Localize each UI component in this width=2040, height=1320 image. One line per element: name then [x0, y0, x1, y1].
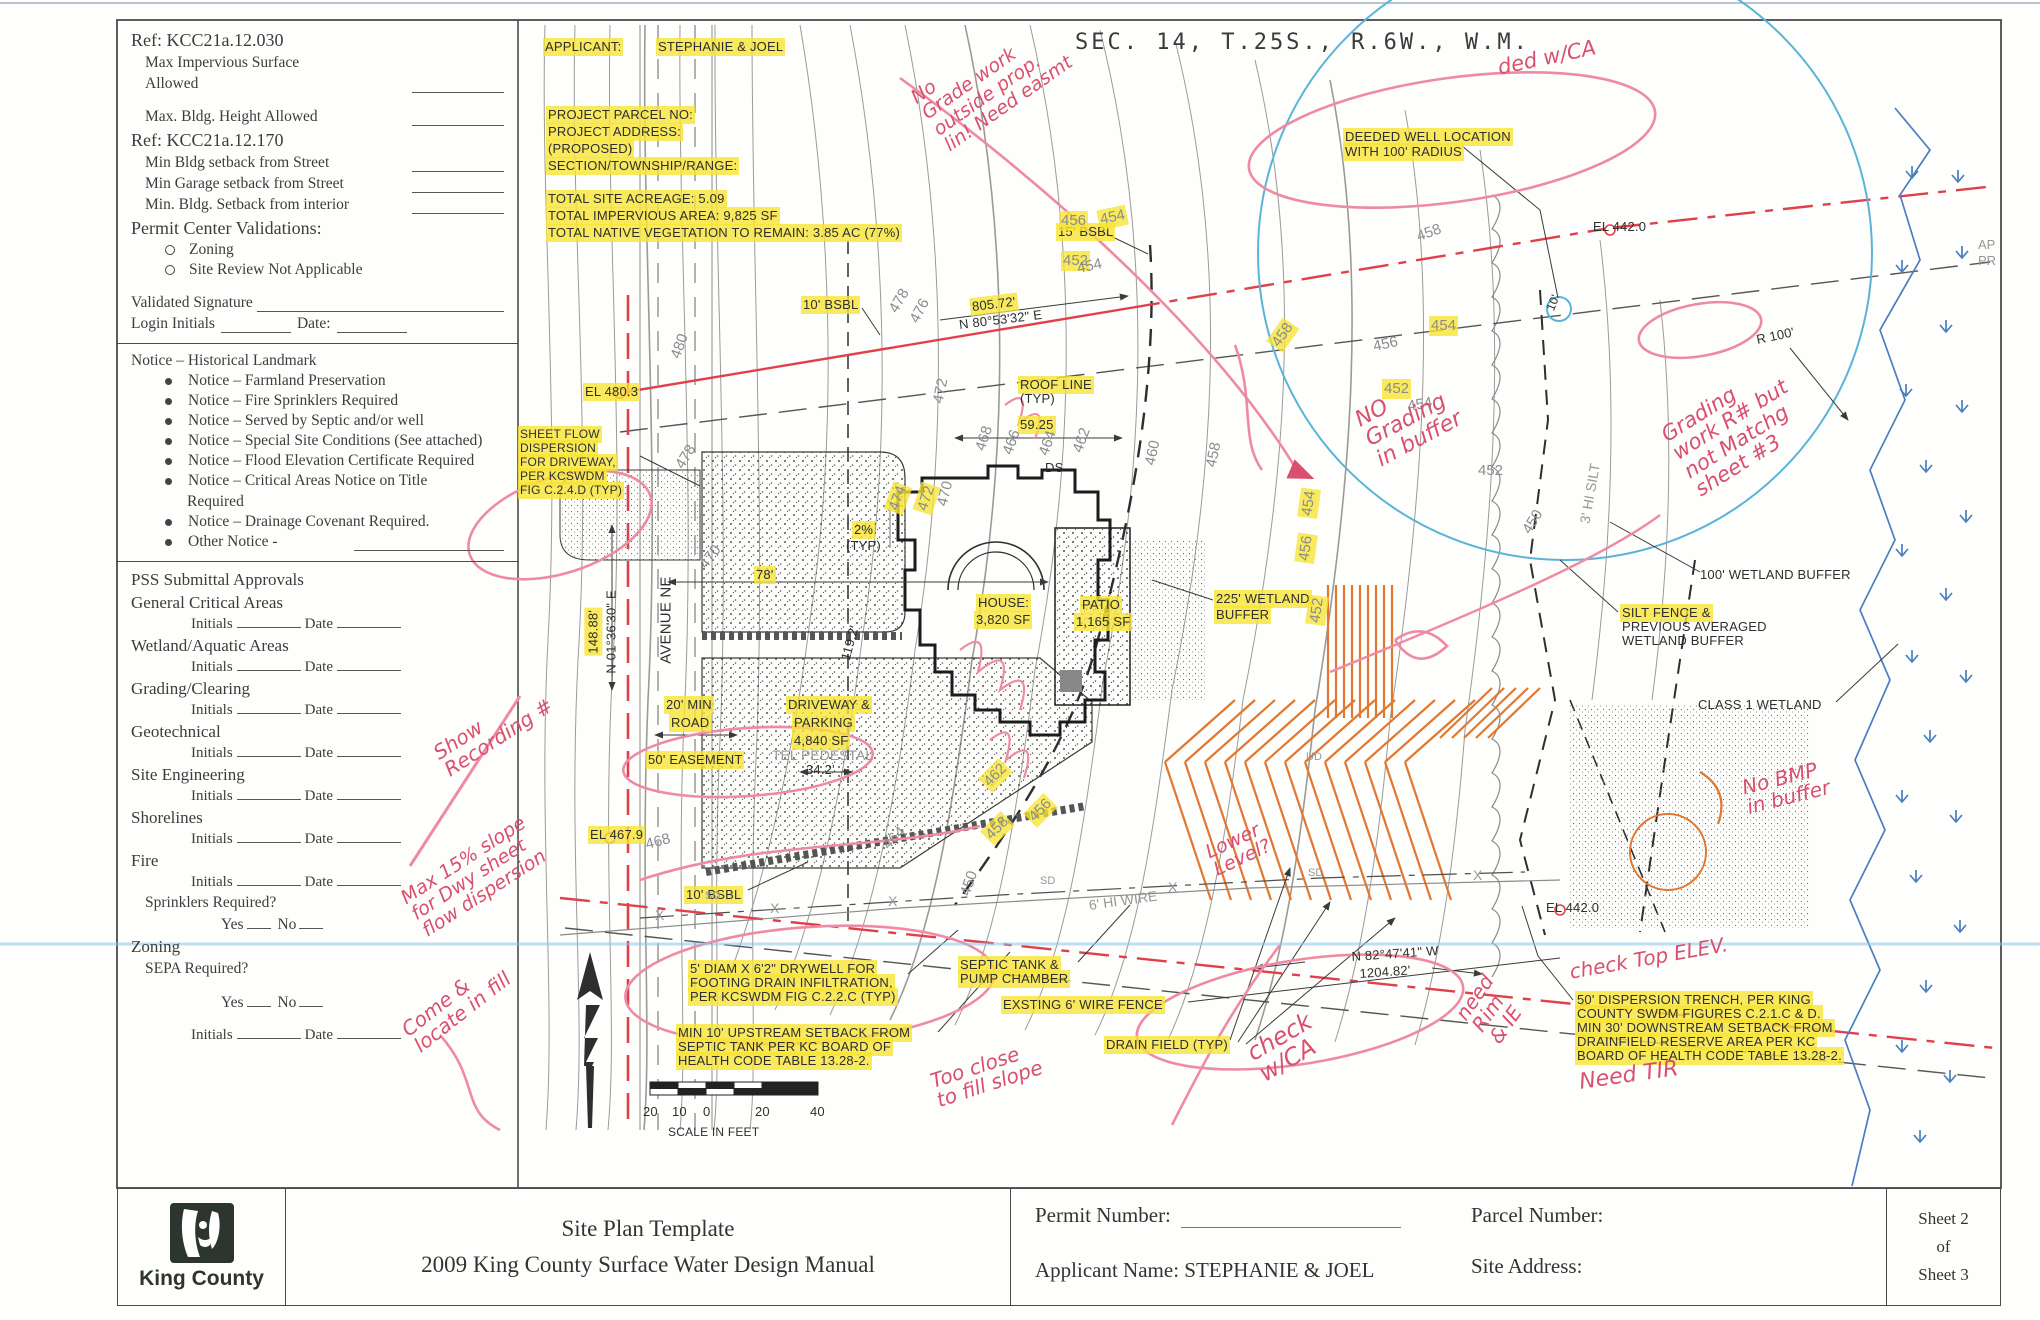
doc-title: Site Plan Template [562, 1216, 735, 1242]
driveway-areas [560, 452, 1810, 928]
permit-number-label: Permit Number: [1035, 1203, 1171, 1228]
notice-item: Notice – Drainage Covenant Required. [165, 513, 508, 531]
notice-item: Zoning [165, 241, 508, 259]
bullet-icon [165, 519, 172, 526]
parcel-number-label: Parcel Number: [1471, 1203, 1603, 1228]
section-township-title: SEC. 14, T.25S., R.6W., W.M. [1075, 30, 1530, 55]
yes-no-row: Yes No [221, 916, 508, 934]
blank-line [412, 157, 504, 172]
form-label: Validated Signature [131, 294, 253, 312]
notice-text: Notice – Critical Areas Notice on Title [188, 472, 427, 490]
permit-number-blank [1181, 1211, 1401, 1228]
sheet-index-cell: Sheet 2 of Sheet 3 [1887, 1189, 2000, 1305]
initials-date-row: InitialsDate [191, 787, 508, 805]
blank-line [337, 319, 407, 333]
form-section-heading: Permit Center Validations: [131, 218, 508, 239]
form-subsection-heading: General Critical Areas [131, 593, 508, 613]
form-divider [117, 343, 518, 344]
form-label: Login Initials [131, 315, 215, 333]
blank-line [257, 297, 504, 312]
form-label: Date: [297, 315, 331, 333]
notice-item: Notice – Critical Areas Notice on Title [165, 472, 508, 490]
bullet-icon [165, 398, 172, 405]
form-label: Sprinklers Required? [145, 894, 508, 912]
notice-text: Notice – Drainage Covenant Required. [188, 513, 429, 531]
form-label: Min Garage setback from Street [145, 175, 344, 193]
form-divider [117, 561, 518, 562]
initials-date-row: InitialsDate [191, 701, 508, 719]
form-label: Allowed [145, 75, 198, 93]
sheet-of: of [1936, 1237, 1950, 1257]
form-subsection-heading: PSS Submittal Approvals [131, 570, 508, 590]
notice-text: Notice – Fire Sprinklers Required [188, 392, 398, 410]
bullet-icon [165, 539, 172, 546]
form-label: Max. Bldg. Height Allowed [145, 108, 318, 126]
bullet-icon [165, 438, 172, 445]
notice-text: Notice – Served by Septic and/or well [188, 412, 424, 430]
notice-item: Notice – Farmland Preservation [165, 372, 508, 390]
form-field-row: Min Bldg setback from Street [145, 154, 508, 172]
sheet-number: Sheet 2 [1918, 1209, 1969, 1229]
form-section-heading: Ref: KCC21a.12.170 [131, 130, 508, 151]
blank-line [412, 199, 504, 214]
bullet-icon [165, 478, 172, 485]
spacer [131, 978, 508, 990]
yes-no-row: Yes No [221, 994, 508, 1012]
form-field-row: Max. Bldg. Height Allowed [145, 108, 508, 126]
bullet-icon [165, 458, 172, 465]
king-county-logo-text: King County [139, 1267, 264, 1291]
login-row: Login InitialsDate: [131, 315, 508, 333]
blank-line [412, 78, 504, 93]
form-subsection-heading: Shorelines [131, 808, 508, 828]
notice-item: Notice – Flood Elevation Certificate Req… [165, 452, 508, 470]
blank-line [354, 536, 504, 551]
applicant-name-value: STEPHANIE & JOEL [1184, 1258, 1374, 1282]
initials-date-row: InitialsDate [191, 658, 508, 676]
bullet-icon [165, 265, 175, 275]
notice-item: Notice – Special Site Conditions (See at… [165, 432, 508, 450]
footer-parcel-cell: Parcel Number: Site Address: [1471, 1203, 1603, 1279]
form-label: Min Bldg setback from Street [145, 154, 329, 172]
form-label: Max Impervious Surface [145, 54, 508, 72]
blank-line [412, 111, 504, 126]
sheet-total: Sheet 3 [1918, 1265, 1969, 1285]
notice-text: Notice – Farmland Preservation [188, 372, 386, 390]
notice-item: Notice – Served by Septic and/or well [165, 412, 508, 430]
footer-title-cell: Site Plan Template 2009 King County Surf… [286, 1189, 1011, 1305]
form-label: Min. Bldg. Setback from interior [145, 196, 349, 214]
form-field-row: Min Garage setback from Street [145, 175, 508, 193]
form-label: Required [187, 493, 508, 511]
fence-line [560, 872, 1560, 935]
blank-line [412, 178, 504, 193]
initials-date-row: InitialsDate [191, 744, 508, 762]
form-subsection-heading: Site Engineering [131, 765, 508, 785]
footer-permit-cell: Permit Number: Applicant Name: STEPHANIE… [1011, 1189, 1887, 1305]
notice-item: Site Review Not Applicable [165, 261, 508, 279]
notice-text: Other Notice - [188, 533, 278, 551]
bullet-icon [165, 378, 172, 385]
scale-bar [650, 1082, 818, 1095]
form-section-heading: Ref: KCC21a.12.030 [131, 30, 508, 51]
initials-date-row: InitialsDate [191, 1026, 508, 1044]
bullet-icon [165, 245, 175, 255]
north-arrow [577, 952, 603, 1128]
initials-date-row: InitialsDate [191, 873, 508, 891]
form-field-row: Min. Bldg. Setback from interior [145, 196, 508, 214]
doc-subtitle: 2009 King County Surface Water Design Ma… [421, 1252, 875, 1278]
clearing-limit-line [1492, 195, 1500, 977]
title-block-footer: King County Site Plan Template 2009 King… [117, 1188, 2001, 1306]
well-radius-circle [1258, 0, 1872, 560]
spacer [131, 279, 508, 291]
form-label: SEPA Required? [145, 960, 508, 978]
permit-form-sidebar: Ref: KCC21a.12.030Max Impervious Surface… [117, 20, 518, 1188]
spacer [131, 93, 508, 105]
wetland-boundary [1845, 108, 1972, 1186]
notice-text: Site Review Not Applicable [189, 261, 362, 279]
form-field-row: Allowed [145, 75, 508, 93]
king-county-logo-icon [156, 1203, 248, 1265]
site-address-label: Site Address: [1471, 1254, 1603, 1279]
initials-date-row: InitialsDate [191, 615, 508, 633]
king-county-logo: King County [118, 1189, 286, 1305]
spacer [131, 1012, 508, 1024]
notice-item: Other Notice - [165, 533, 508, 551]
blank-line [221, 319, 291, 333]
form-subsection-heading: Fire [131, 851, 508, 871]
notice-item: Notice – Fire Sprinklers Required [165, 392, 508, 410]
form-subsection-heading: Geotechnical [131, 722, 508, 742]
form-subsection-heading: Grading/Clearing [131, 679, 508, 699]
form-subsection-heading: Zoning [131, 937, 508, 957]
site-plan-sheet: { "colors":{"highlight":"#f7e334","red_i… [0, 0, 2040, 1320]
signature-row: Validated Signature [131, 294, 508, 312]
form-subsection-heading: Wetland/Aquatic Areas [131, 636, 508, 656]
applicant-name-label: Applicant Name: [1035, 1258, 1179, 1282]
notice-text: Zoning [189, 241, 234, 259]
initials-date-row: InitialsDate [191, 830, 508, 848]
notice-text: Notice – Special Site Conditions (See at… [188, 432, 482, 450]
form-label: Notice – Historical Landmark [131, 352, 508, 370]
notice-text: Notice – Flood Elevation Certificate Req… [188, 452, 474, 470]
bullet-icon [165, 418, 172, 425]
